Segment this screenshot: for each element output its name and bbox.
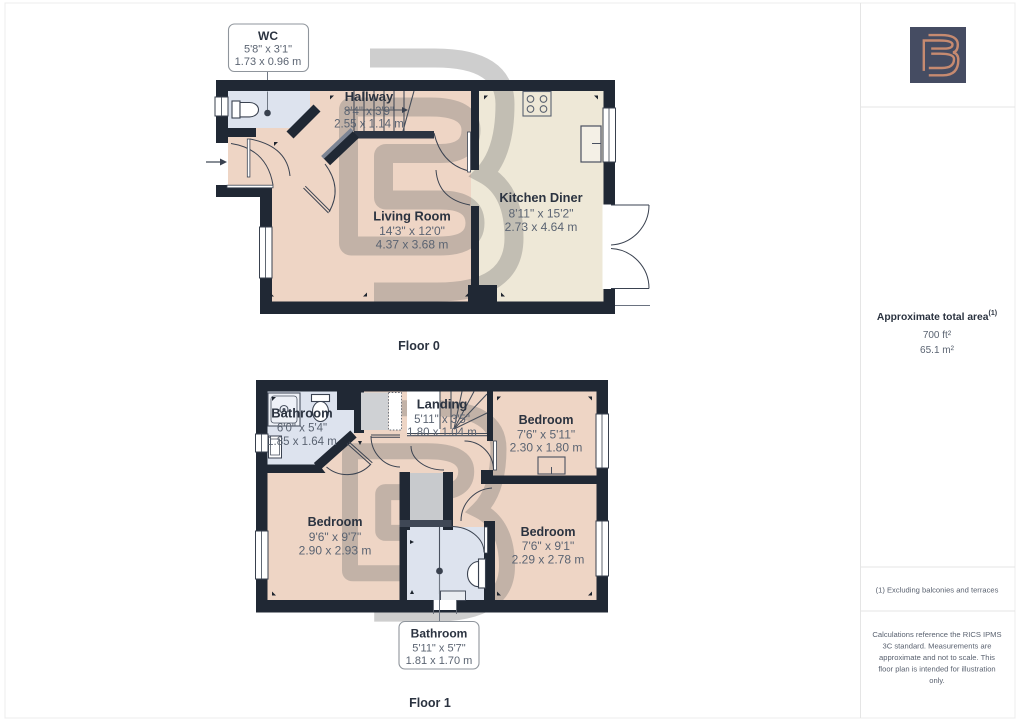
- svg-text:8'11" x 15'2": 8'11" x 15'2": [509, 207, 574, 221]
- svg-text:Bedroom: Bedroom: [521, 525, 576, 539]
- svg-text:2.29 x 2.78 m: 2.29 x 2.78 m: [512, 553, 585, 567]
- svg-text:Floor 0: Floor 0: [398, 339, 440, 353]
- svg-text:Calculations reference the RIC: Calculations reference the RICS IPMS: [872, 630, 1001, 639]
- svg-text:1.81 x 1.70 m: 1.81 x 1.70 m: [406, 655, 473, 667]
- svg-text:Bathroom: Bathroom: [411, 627, 468, 641]
- svg-text:65.1 m²: 65.1 m²: [920, 345, 955, 356]
- svg-text:7'6" x 5'11": 7'6" x 5'11": [517, 428, 575, 442]
- svg-text:2.73 x 4.64 m: 2.73 x 4.64 m: [505, 220, 578, 234]
- svg-text:700 ft²: 700 ft²: [923, 330, 952, 341]
- svg-text:Floor 1: Floor 1: [409, 696, 451, 710]
- svg-text:Kitchen Diner: Kitchen Diner: [499, 190, 582, 205]
- svg-text:Bedroom: Bedroom: [519, 413, 574, 427]
- svg-text:8'4" x 3'9": 8'4" x 3'9": [344, 106, 394, 118]
- svg-text:floor plan is intended for ill: floor plan is intended for illustration: [878, 665, 995, 674]
- svg-text:Bathroom: Bathroom: [271, 406, 332, 421]
- svg-text:Bedroom: Bedroom: [308, 515, 363, 529]
- svg-text:WC: WC: [258, 29, 278, 43]
- svg-text:approximate and not to scale.: approximate and not to scale. This: [879, 653, 995, 662]
- svg-text:4.37 x 3.68 m: 4.37 x 3.68 m: [376, 238, 449, 252]
- svg-text:2.90 x 2.93 m: 2.90 x 2.93 m: [299, 544, 372, 558]
- svg-text:3C standard. Measurements are: 3C standard. Measurements are: [883, 642, 992, 651]
- svg-text:1.80 x 1.04 m: 1.80 x 1.04 m: [407, 427, 477, 439]
- svg-text:Hallway: Hallway: [345, 89, 394, 104]
- svg-text:Landing: Landing: [417, 397, 468, 412]
- svg-text:9'6" x 9'7": 9'6" x 9'7": [309, 530, 361, 544]
- svg-text:Living Room: Living Room: [373, 209, 451, 224]
- svg-text:1.73 x 0.96 m: 1.73 x 0.96 m: [235, 56, 302, 68]
- svg-text:5'11" x 5'7": 5'11" x 5'7": [412, 643, 465, 655]
- svg-text:1.85 x 1.64 m: 1.85 x 1.64 m: [267, 436, 337, 448]
- svg-text:7'6" x 9'1": 7'6" x 9'1": [522, 539, 574, 553]
- svg-text:only.: only.: [929, 676, 944, 685]
- svg-text:6'0" x 5'4": 6'0" x 5'4": [277, 423, 327, 435]
- svg-text:2.30 x 1.80 m: 2.30 x 1.80 m: [510, 441, 583, 455]
- svg-text:14'3" x 12'0": 14'3" x 12'0": [379, 224, 445, 238]
- svg-text:5'11" x 3'5": 5'11" x 3'5": [414, 414, 470, 426]
- svg-text:Approximate total area(1): Approximate total area(1): [877, 310, 997, 323]
- svg-text:5'8" x 3'1": 5'8" x 3'1": [244, 44, 292, 56]
- svg-text:(1) Excluding balconies and te: (1) Excluding balconies and terraces: [876, 586, 999, 595]
- svg-text:2.55 x 1.14 m: 2.55 x 1.14 m: [334, 119, 404, 131]
